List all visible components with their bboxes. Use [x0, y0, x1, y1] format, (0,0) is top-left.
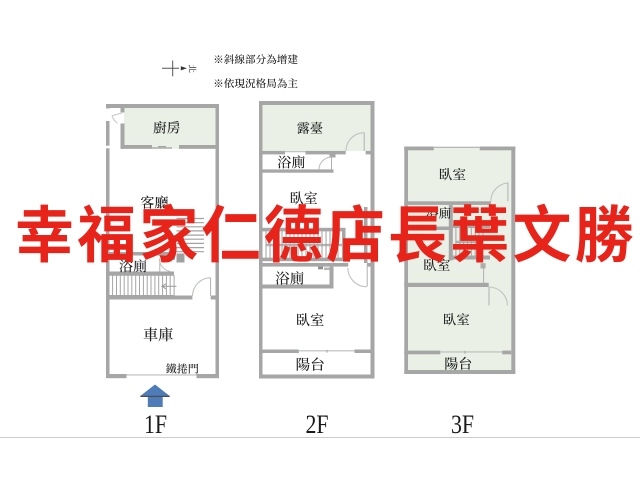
svg-text:2F: 2F: [305, 411, 328, 439]
svg-text:1F: 1F: [144, 411, 167, 439]
svg-text:3F: 3F: [451, 411, 474, 439]
